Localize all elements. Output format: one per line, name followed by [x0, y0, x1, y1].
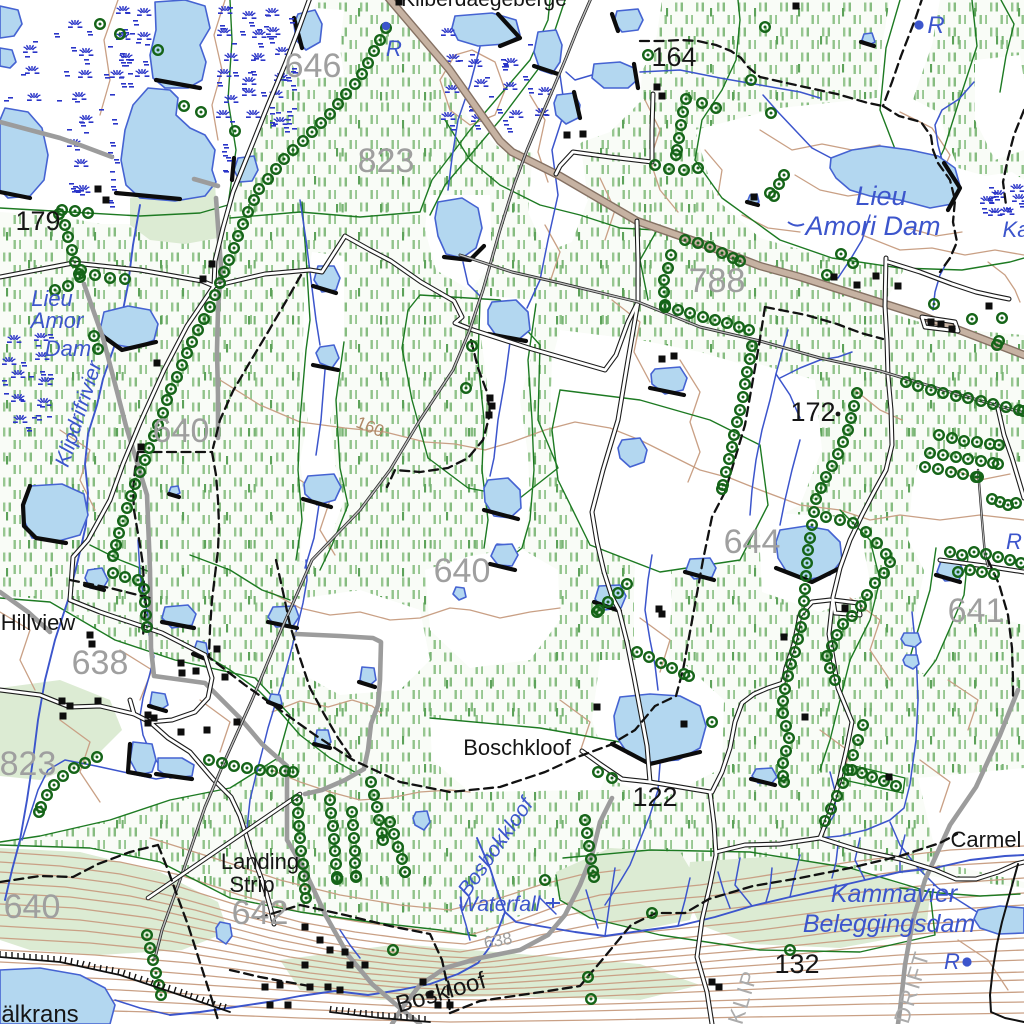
- svg-text:Ka: Ka: [1003, 217, 1024, 242]
- svg-text:Amor: Amor: [29, 308, 85, 333]
- svg-text:823: 823: [0, 745, 56, 783]
- svg-text:Dam: Dam: [45, 336, 91, 361]
- svg-text:641: 641: [948, 592, 1005, 630]
- svg-text:Waterfall: Waterfall: [458, 893, 542, 916]
- svg-text:R: R: [944, 949, 960, 974]
- svg-text:640: 640: [4, 888, 61, 926]
- svg-text:172: 172: [790, 397, 835, 427]
- svg-text:823: 823: [358, 142, 415, 180]
- svg-text:Boschkloof: Boschkloof: [463, 735, 572, 760]
- svg-text:132: 132: [774, 949, 819, 979]
- svg-text:Amori Dam: Amori Dam: [803, 211, 940, 241]
- svg-text:638: 638: [72, 644, 129, 682]
- svg-text:Strip: Strip: [229, 872, 274, 897]
- svg-text:älkrans: älkrans: [1, 1001, 78, 1024]
- svg-text:640: 640: [434, 552, 491, 590]
- svg-text:646: 646: [285, 47, 342, 85]
- svg-text:Landing: Landing: [221, 849, 299, 874]
- svg-text:179: 179: [15, 206, 60, 236]
- svg-text:Kammavier: Kammavier: [831, 880, 959, 908]
- svg-text:644: 644: [724, 523, 781, 561]
- svg-text:R: R: [1006, 529, 1022, 554]
- svg-text:788: 788: [689, 262, 746, 300]
- svg-text:642: 642: [232, 894, 289, 932]
- svg-text:640: 640: [153, 412, 210, 450]
- svg-text:164: 164: [651, 42, 696, 72]
- svg-text:R: R: [927, 12, 944, 39]
- svg-text:Beleggingsdam: Beleggingsdam: [803, 910, 975, 938]
- svg-text:Kliberdaegeberge: Kliberdaegeberge: [401, 0, 567, 11]
- svg-text:Hillview: Hillview: [1, 610, 76, 635]
- svg-text:122: 122: [632, 782, 677, 812]
- svg-text:Carmel: Carmel: [951, 827, 1022, 852]
- svg-text:R: R: [386, 36, 402, 61]
- svg-text:Lieu: Lieu: [855, 181, 906, 211]
